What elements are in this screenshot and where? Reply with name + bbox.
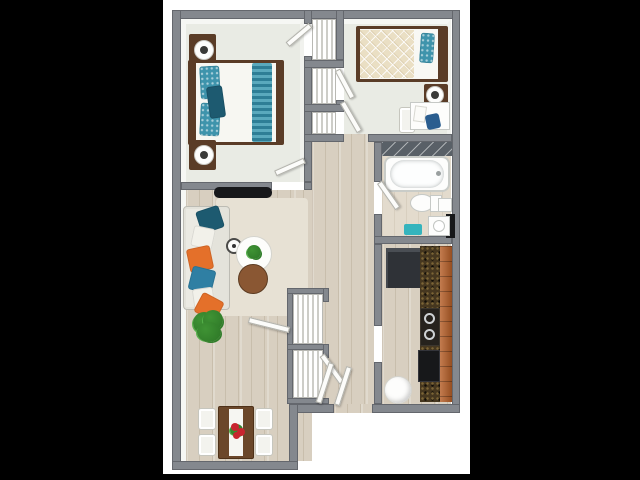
stove-burner: [424, 329, 435, 340]
desk-chair-blue: [425, 113, 442, 131]
wall-bottom-kitchen-b: [372, 404, 460, 413]
wall-bedroom2-south: [368, 134, 452, 142]
water-heater: [384, 376, 412, 404]
lamp-shade-center: [200, 46, 208, 54]
entry-closet-shelves-1: [293, 294, 323, 344]
teal-bath-mat: [404, 224, 422, 235]
closet-shelves-3: [312, 112, 336, 134]
wall-tv: [214, 187, 272, 198]
wall-closet-div1: [304, 60, 344, 68]
wall-closet-bottom: [304, 134, 344, 142]
lamp-shade-center: [431, 91, 439, 99]
wall-closet-east-a: [336, 10, 344, 60]
wall-bath-kitchen: [374, 236, 452, 244]
wall-master-south-b: [304, 182, 312, 190]
clock-center: [232, 244, 236, 248]
wall-kitchen-west-b: [374, 362, 382, 404]
bathtub-drain: [436, 171, 441, 176]
wall-kitchen-west-a: [374, 244, 382, 326]
refrigerator: [386, 248, 424, 288]
sink-bowl: [433, 220, 445, 232]
diamond-quilt: [360, 30, 414, 78]
wall-right: [452, 10, 460, 413]
dining-chair: [198, 408, 216, 430]
teal-striped-runner: [252, 63, 272, 142]
orange-cabinets: [440, 246, 452, 402]
bathroom-shelf: [438, 198, 452, 212]
flower-centerpiece: [233, 432, 240, 439]
lamp-shade-center: [200, 151, 208, 159]
dining-chair: [198, 434, 216, 456]
stove-burner: [424, 313, 435, 324]
wall-bottom-dining: [172, 461, 298, 470]
wall-left: [172, 10, 181, 470]
wall-top: [172, 10, 460, 19]
bed2-pillow: [419, 33, 435, 64]
tiled-wall: [382, 142, 452, 156]
oven: [418, 350, 440, 382]
potted-plant: [247, 245, 261, 259]
floor-plant: [197, 322, 221, 342]
side-table: [238, 264, 268, 294]
dining-chair: [255, 434, 273, 456]
dining-chair: [255, 408, 273, 430]
wall-closet-div2: [304, 104, 344, 112]
closet-shelves-2: [312, 68, 336, 104]
floorplan-image: [0, 0, 640, 480]
entry-closet-stub-a: [323, 288, 329, 302]
closet-shelves-1: [312, 19, 336, 60]
wall-bath-west-a: [374, 142, 382, 182]
